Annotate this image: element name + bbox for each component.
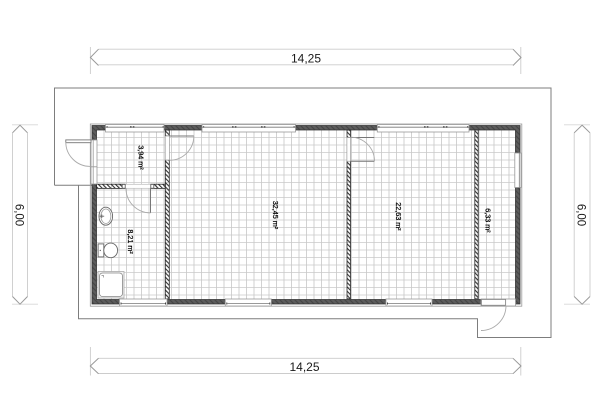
svg-text:6,33 m²: 6,33 m² [484,208,493,233]
svg-text:6,00: 6,00 [575,204,587,226]
svg-text:32,45 m²: 32,45 m² [271,201,280,230]
svg-text:22,63 m²: 22,63 m² [394,202,403,231]
svg-text:6,00: 6,00 [12,204,24,226]
svg-text:3,94 m²: 3,94 m² [136,145,145,170]
svg-text:8,21 m²: 8,21 m² [126,229,135,254]
svg-text:14,25: 14,25 [291,51,321,65]
svg-text:14,25: 14,25 [289,360,319,374]
